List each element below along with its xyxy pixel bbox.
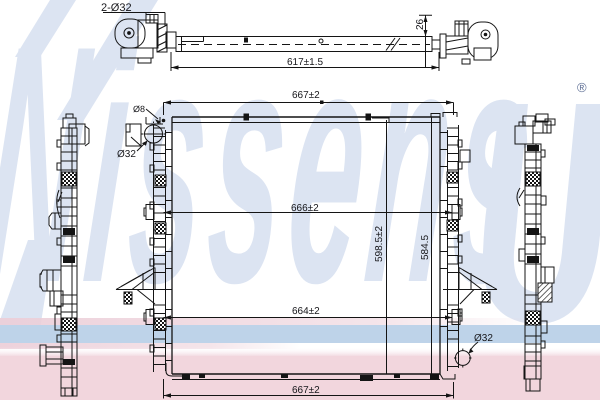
svg-text:584.5: 584.5	[420, 235, 431, 260]
svg-text:667±2: 667±2	[292, 90, 320, 101]
svg-text:Ø32: Ø32	[117, 149, 136, 160]
svg-text:598.5±2: 598.5±2	[374, 225, 385, 262]
svg-text:664±2: 664±2	[292, 306, 320, 317]
svg-text:Ø8: Ø8	[133, 104, 145, 114]
svg-text:617±1.5: 617±1.5	[287, 57, 324, 68]
svg-text:667±2: 667±2	[292, 385, 320, 396]
svg-text:®: ®	[577, 80, 587, 95]
